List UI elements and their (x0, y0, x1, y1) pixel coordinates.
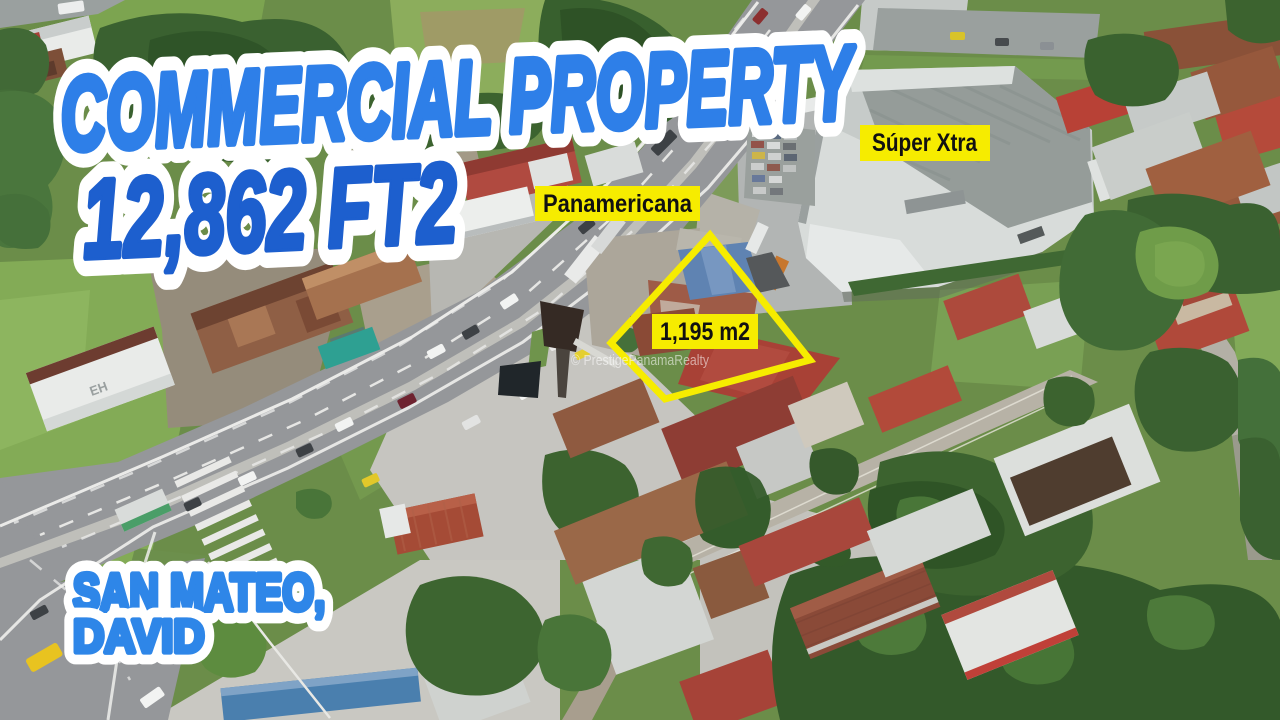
svg-text:12,862 FT2: 12,862 FT2 (79, 141, 459, 283)
svg-text:© PrestigePanamaRealty: © PrestigePanamaRealty (571, 352, 709, 369)
svg-text:Panamericana: Panamericana (543, 190, 693, 218)
svg-text:DAVID: DAVID (73, 610, 205, 663)
svg-text:Súper Xtra: Súper Xtra (872, 129, 978, 157)
svg-text:1,195 m2: 1,195 m2 (660, 318, 750, 346)
